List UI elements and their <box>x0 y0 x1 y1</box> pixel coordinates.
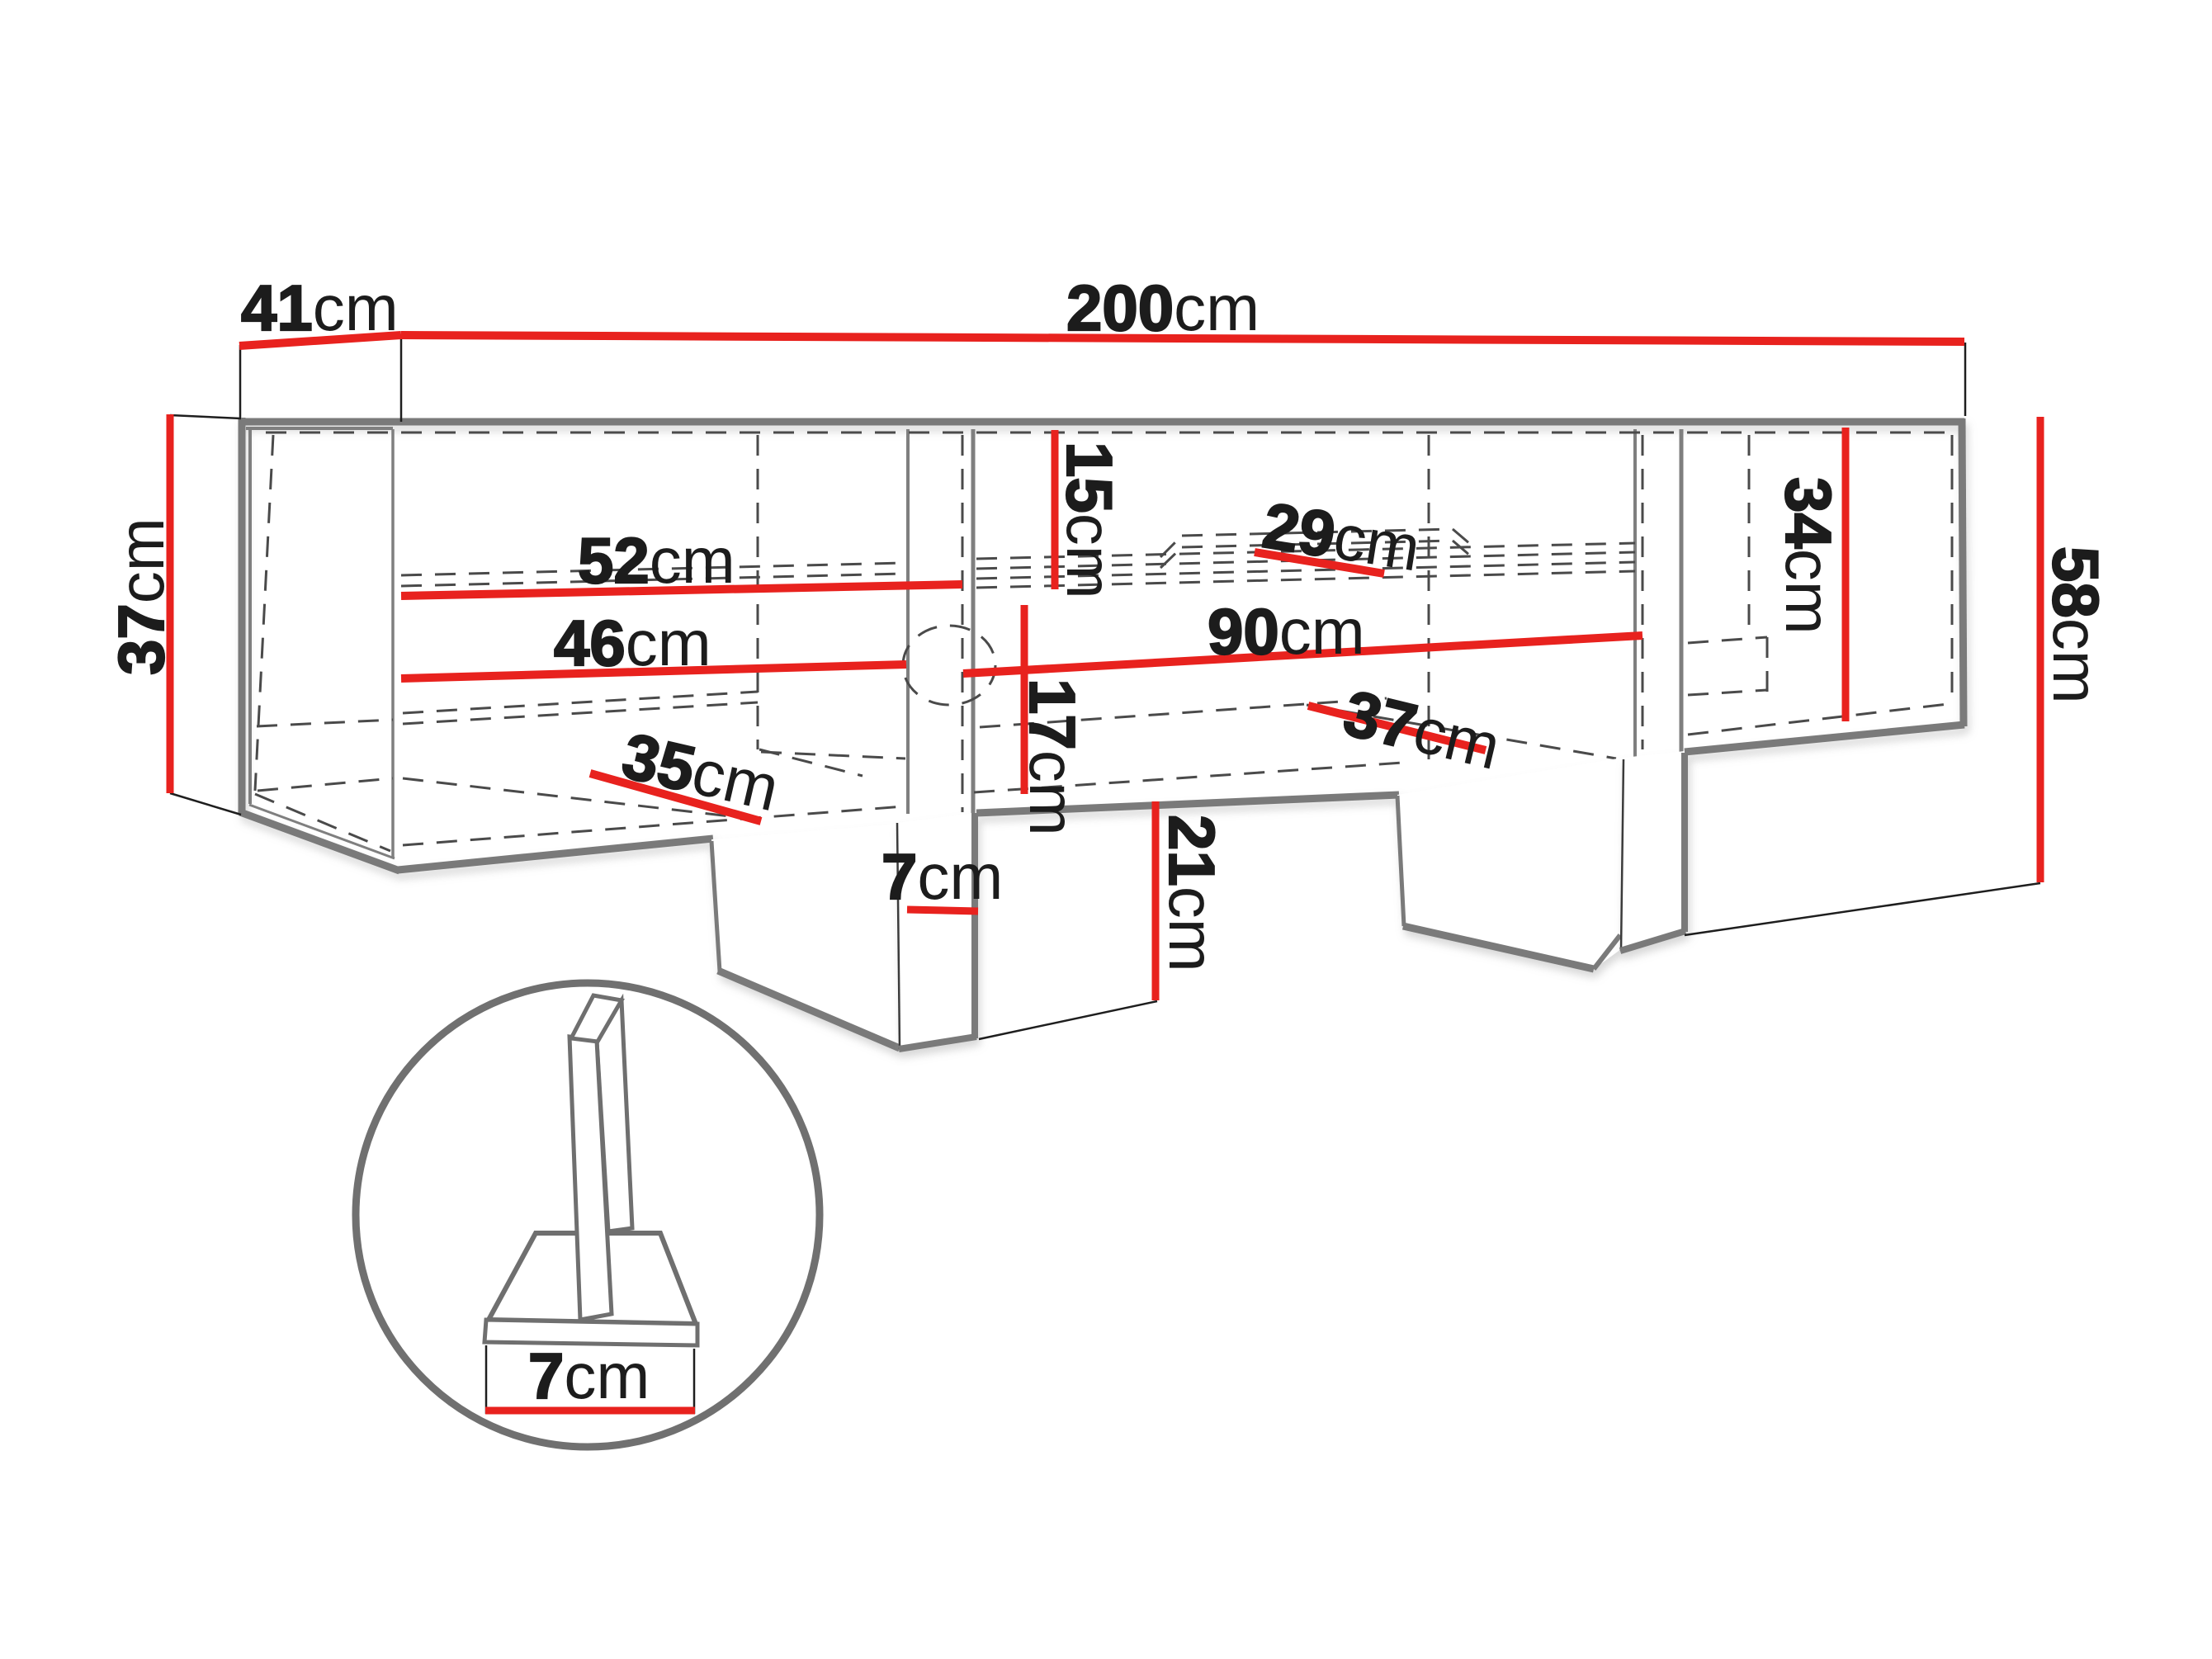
svg-text:37cm: 37cm <box>105 518 177 675</box>
svg-text:7cm: 7cm <box>528 1340 650 1412</box>
svg-text:52cm: 52cm <box>578 524 735 597</box>
svg-text:21cm: 21cm <box>1156 815 1228 972</box>
svg-text:15cm: 15cm <box>1053 442 1126 599</box>
svg-text:34cm: 34cm <box>1772 477 1845 635</box>
svg-text:37cm: 37cm <box>1337 676 1507 783</box>
svg-text:90cm: 90cm <box>1208 595 1365 668</box>
svg-text:35cm: 35cm <box>616 719 786 825</box>
svg-text:17cm: 17cm <box>1016 678 1089 836</box>
svg-text:7cm: 7cm <box>881 840 1003 913</box>
svg-text:41cm: 41cm <box>241 272 399 344</box>
svg-text:46cm: 46cm <box>554 607 711 679</box>
svg-text:58cm: 58cm <box>2039 546 2112 704</box>
svg-text:200cm: 200cm <box>1066 272 1260 344</box>
